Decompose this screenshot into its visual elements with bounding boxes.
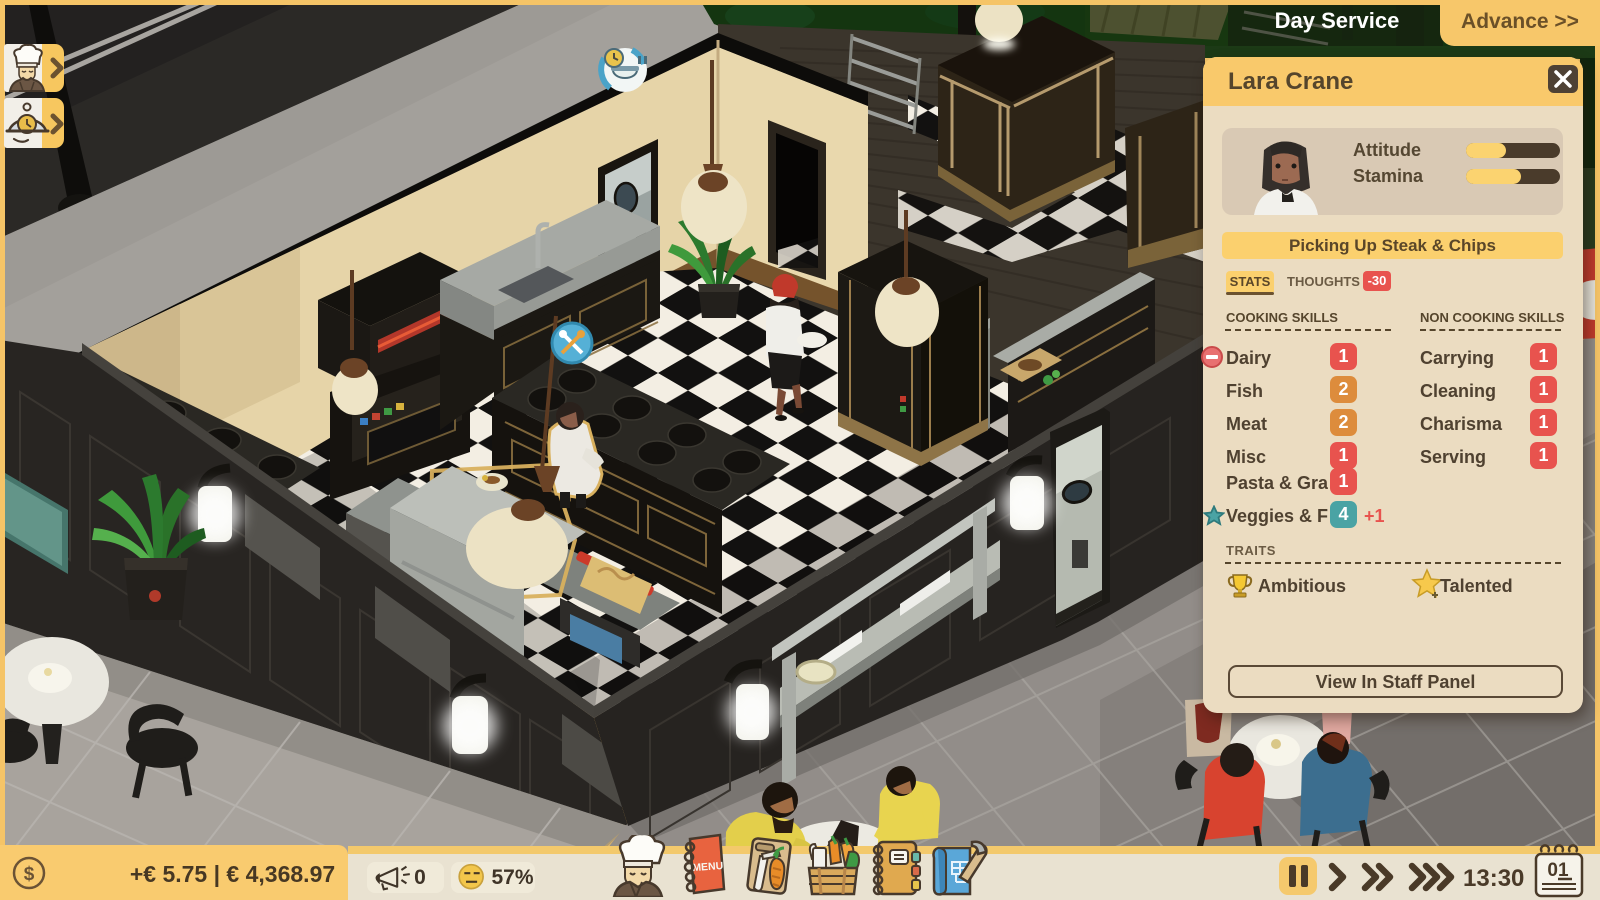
- svg-text:MENU: MENU: [692, 860, 724, 874]
- svg-text:$: $: [24, 864, 35, 885]
